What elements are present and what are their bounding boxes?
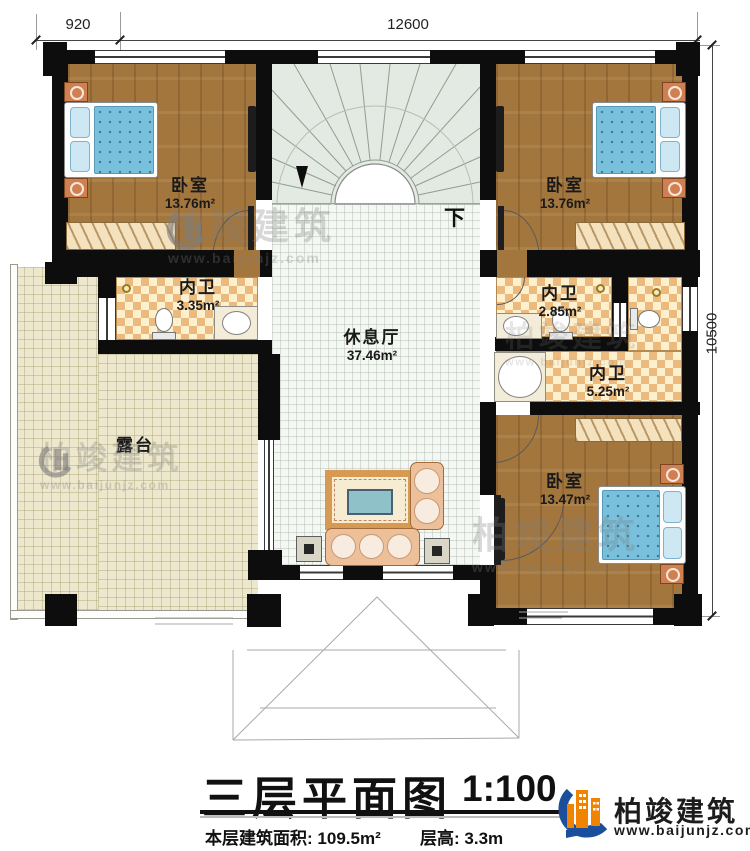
dimension-12600: 12600 [348, 16, 468, 33]
roof-outline [150, 585, 570, 755]
bed-pillow [660, 141, 680, 172]
bed-mattress [94, 106, 154, 174]
floor-plan-sheet: 920 12600 10500 [0, 0, 750, 851]
title-underline [200, 810, 570, 814]
watermark: 柏竣建筑www.baijunjz.com [40, 432, 183, 492]
nightstand [64, 178, 88, 198]
bed-pillow [663, 527, 682, 559]
bed-mattress [596, 106, 656, 174]
brand-logo-icon [552, 784, 610, 846]
nightstand [660, 564, 684, 584]
nightstand [662, 178, 686, 198]
sofa-cushion [359, 534, 384, 559]
column [248, 550, 282, 580]
tv-panel [248, 106, 256, 172]
window [98, 298, 116, 342]
window [525, 50, 655, 64]
floor-area-text: 本层建筑面积: 109.5m² [205, 824, 381, 849]
title-underline-shadow [200, 816, 570, 818]
bed-pillow [663, 491, 682, 523]
wall [258, 354, 280, 440]
window [682, 287, 698, 331]
brand-url: www.baijunjz.com [614, 822, 750, 838]
room-label-bedroom-bottom-right: 卧室13.47m² [495, 472, 635, 507]
dimension-line-top [36, 40, 700, 41]
stairs-down-label: 下 [444, 202, 465, 232]
watermark: 柏竣建筑www.baijunjz.com [168, 196, 336, 266]
sofa-cushion [414, 468, 440, 494]
watermark: 柏竣建筑www.baijunjz.com [472, 505, 640, 575]
wardrobe [66, 222, 176, 250]
sofa-cushion [414, 498, 440, 524]
bed-pillow [660, 107, 680, 138]
window [95, 50, 225, 64]
sofa-cushion [387, 534, 412, 559]
sheet-scale: 1:100 [462, 768, 557, 810]
shower-head [652, 288, 661, 297]
coffee-table [347, 489, 393, 515]
terrace-window-band [264, 440, 274, 566]
wall [98, 340, 272, 354]
bed-pillow [70, 107, 90, 138]
wall [480, 250, 497, 277]
room-label-hall: 休息厅37.46m² [302, 328, 442, 363]
wall [480, 402, 496, 495]
wall [480, 50, 496, 200]
door-opening [497, 250, 527, 277]
tv-panel [496, 106, 504, 172]
window [318, 50, 430, 64]
terrace-parapet [10, 264, 18, 620]
room-label-bath-right-bottom: 内卫5.25m² [538, 364, 678, 399]
wall [530, 402, 700, 415]
table-lamp [304, 544, 314, 554]
column [45, 594, 77, 626]
watermark: 柏竣建筑www.baijunjz.com [505, 312, 639, 368]
window [300, 565, 343, 580]
sofa-cushion [331, 534, 356, 559]
wardrobe [575, 418, 682, 442]
extension-line [36, 14, 37, 50]
floor-height-text: 层高: 3.3m [420, 824, 503, 849]
wall [280, 565, 300, 580]
watermark-logo-icon [40, 443, 72, 480]
wall [343, 565, 383, 580]
nightstand [662, 82, 686, 102]
wardrobe [575, 222, 685, 250]
room-label-bedroom-top-right: 卧室13.76m² [495, 176, 635, 211]
dimension-10500: 10500 [704, 294, 721, 374]
room-label-bath-left: 内卫3.35m² [128, 278, 268, 313]
dimension-920: 920 [48, 16, 108, 33]
nightstand [660, 464, 684, 484]
column [674, 594, 702, 626]
toilet [638, 310, 660, 328]
bed-pillow [70, 141, 90, 172]
window [383, 565, 453, 580]
wall [527, 250, 700, 277]
watermark-logo-icon [168, 209, 206, 253]
sink-basin [222, 311, 251, 335]
nightstand [64, 82, 88, 102]
toilet [152, 332, 176, 340]
stairs [272, 64, 480, 204]
table-lamp [432, 546, 442, 556]
